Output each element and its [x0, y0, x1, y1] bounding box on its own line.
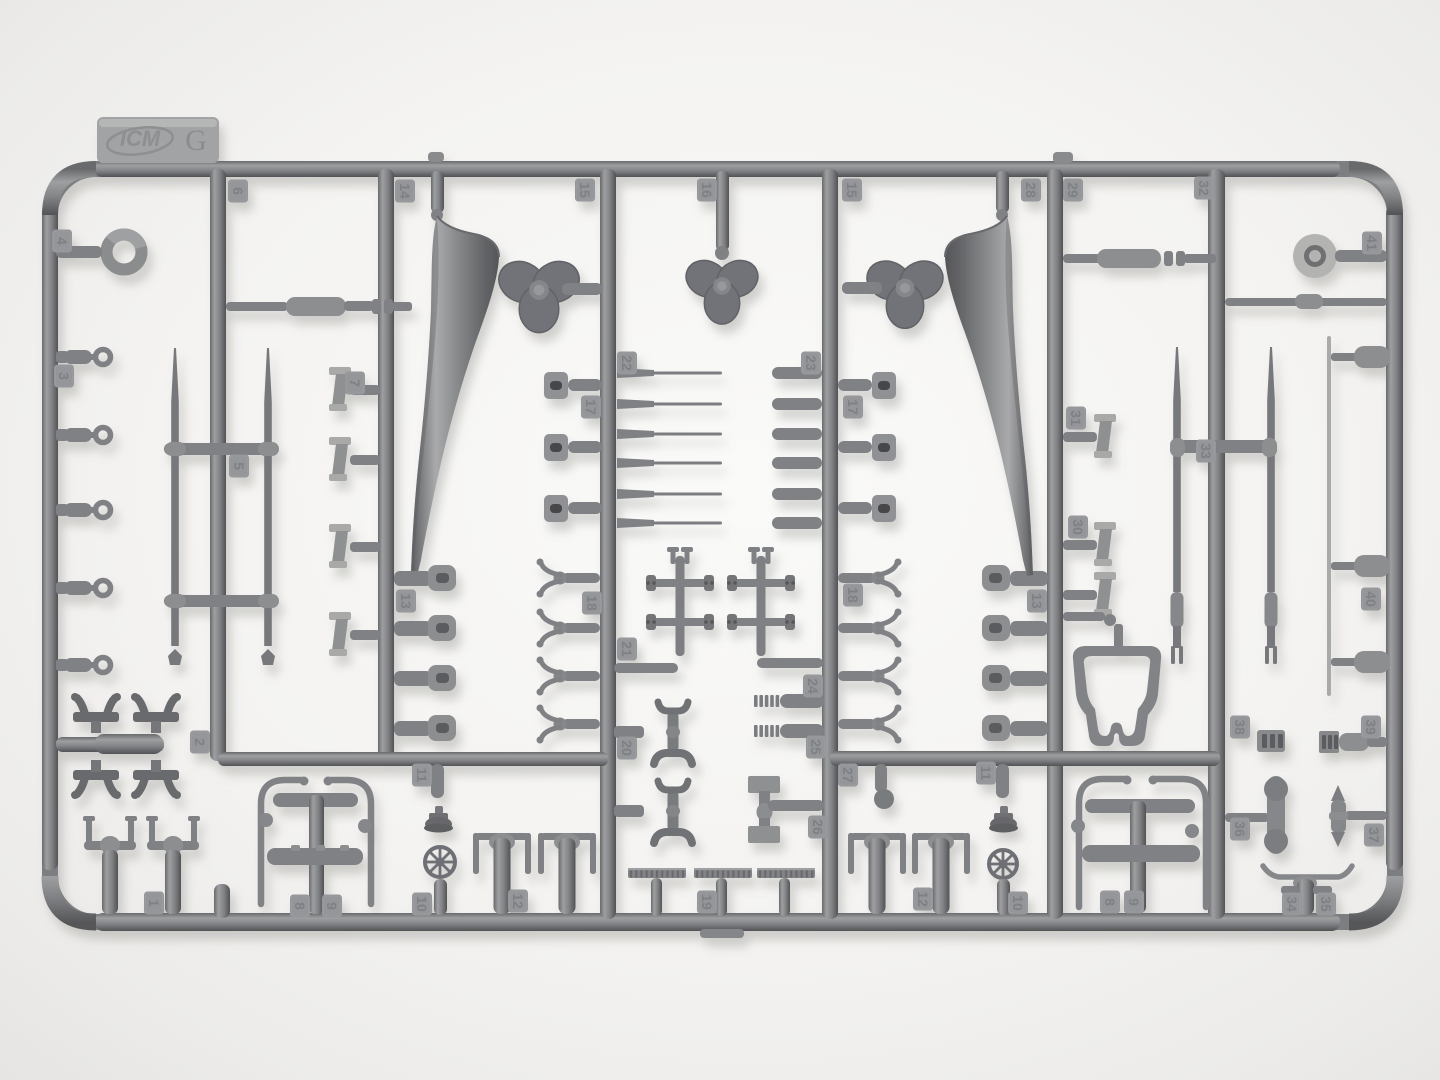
svg-text:26: 26	[810, 819, 826, 835]
svg-text:28: 28	[1023, 182, 1039, 198]
svg-text:29: 29	[1065, 182, 1081, 198]
svg-text:40: 40	[1363, 591, 1379, 607]
svg-text:9: 9	[1126, 898, 1142, 906]
svg-text:3: 3	[56, 372, 72, 380]
svg-text:14: 14	[397, 183, 413, 199]
svg-text:17: 17	[845, 399, 861, 415]
svg-text:23: 23	[803, 355, 819, 371]
svg-text:7: 7	[347, 379, 363, 387]
svg-text:ICM: ICM	[120, 126, 161, 151]
svg-text:5: 5	[231, 462, 247, 470]
svg-text:18: 18	[845, 587, 861, 603]
svg-text:13: 13	[398, 593, 414, 609]
svg-text:17: 17	[583, 399, 599, 415]
svg-text:32: 32	[1196, 180, 1212, 196]
svg-text:38: 38	[1232, 719, 1248, 735]
svg-text:9: 9	[324, 902, 340, 910]
svg-text:12: 12	[510, 893, 526, 909]
svg-text:20: 20	[619, 740, 635, 756]
svg-text:31: 31	[1068, 410, 1084, 426]
svg-text:19: 19	[699, 894, 715, 910]
svg-text:41: 41	[1364, 235, 1380, 251]
svg-text:1: 1	[146, 899, 162, 907]
svg-text:35: 35	[1318, 896, 1334, 912]
svg-text:8: 8	[1102, 898, 1118, 906]
svg-text:16: 16	[699, 182, 715, 198]
svg-text:2: 2	[192, 738, 208, 746]
svg-text:11: 11	[978, 766, 994, 781]
svg-text:37: 37	[1366, 827, 1382, 843]
svg-text:6: 6	[230, 187, 246, 195]
svg-text:33: 33	[1198, 443, 1214, 459]
svg-text:22: 22	[619, 355, 635, 371]
svg-text:24: 24	[805, 678, 821, 694]
svg-text:30: 30	[1070, 519, 1086, 535]
svg-text:8: 8	[292, 902, 308, 910]
svg-text:27: 27	[840, 767, 856, 783]
svg-text:11: 11	[414, 768, 430, 783]
svg-text:36: 36	[1232, 821, 1248, 837]
svg-text:G: G	[185, 124, 207, 157]
svg-text:21: 21	[619, 641, 635, 657]
svg-text:15: 15	[577, 182, 593, 198]
svg-text:4: 4	[54, 237, 70, 245]
svg-text:25: 25	[808, 739, 824, 755]
svg-text:15: 15	[844, 182, 860, 198]
svg-text:10: 10	[414, 896, 430, 912]
svg-text:39: 39	[1363, 719, 1379, 735]
svg-text:13: 13	[1029, 593, 1045, 609]
svg-text:34: 34	[1284, 896, 1300, 912]
svg-text:10: 10	[1010, 895, 1026, 911]
svg-text:18: 18	[584, 595, 600, 611]
svg-text:12: 12	[915, 891, 931, 907]
